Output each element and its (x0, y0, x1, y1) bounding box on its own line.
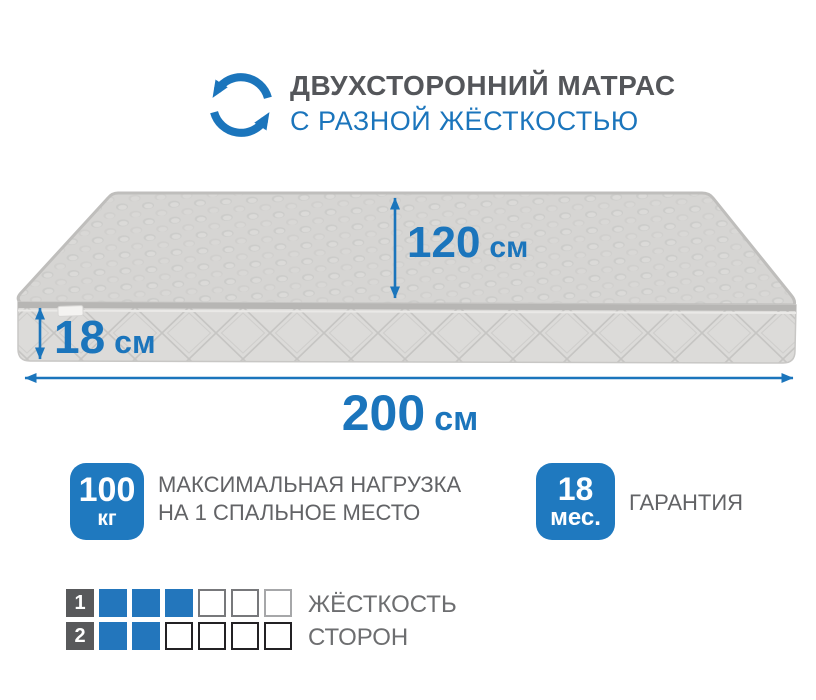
hardness-caption: ЖЁСТКОСТЬ СТОРОН (308, 588, 457, 654)
depth-dimension-label: 120см (407, 218, 528, 268)
width-value: 200 (342, 385, 425, 441)
hardness-cell-filled (99, 589, 127, 617)
hardness-side1-label: 1 (66, 589, 94, 617)
width-dimension-label: 200см (260, 384, 560, 442)
infographic: ДВУХСТОРОННИЙ МАТРАС С РАЗНОЙ ЖЁСТКОСТЬЮ (0, 0, 816, 700)
hardness-cell-filled (165, 589, 193, 617)
max-load-caption-line2: НА 1 СПАЛЬНОЕ МЕСТО (158, 499, 461, 527)
hardness-cell-empty (165, 622, 193, 650)
depth-value: 120 (407, 218, 480, 267)
height-unit: см (114, 324, 155, 360)
hardness-cell-empty (198, 622, 226, 650)
height-dimension-label: 18см (54, 310, 156, 364)
width-unit: см (434, 400, 478, 438)
hardness-row-side2: 2 (66, 622, 292, 650)
hardness-cell-empty (231, 589, 259, 617)
warranty-caption-line1: ГАРАНТИЯ (629, 489, 743, 517)
hardness-side2-label: 2 (66, 622, 94, 650)
max-load-unit: кг (97, 507, 116, 531)
hardness-scale: 1 2 (66, 589, 292, 655)
max-load-caption-line1: МАКСИМАЛЬНАЯ НАГРУЗКА (158, 471, 461, 499)
depth-unit: см (489, 231, 528, 264)
hardness-cell-empty (231, 622, 259, 650)
warranty-value: 18 (558, 473, 594, 505)
max-load-badge: 100 кг (70, 463, 144, 540)
max-load-caption: МАКСИМАЛЬНАЯ НАГРУЗКА НА 1 СПАЛЬНОЕ МЕСТ… (158, 471, 461, 527)
hardness-row-side1: 1 (66, 589, 292, 617)
warranty-unit: мес. (550, 505, 601, 531)
warranty-badge: 18 мес. (536, 463, 615, 540)
hardness-caption-line1: ЖЁСТКОСТЬ (308, 588, 457, 621)
hardness-cell-empty (264, 589, 292, 617)
hardness-cell-empty (198, 589, 226, 617)
warranty-caption: ГАРАНТИЯ (629, 489, 743, 517)
height-value: 18 (54, 311, 105, 363)
hardness-cell-empty (264, 622, 292, 650)
hardness-caption-line2: СТОРОН (308, 621, 457, 654)
hardness-cell-filled (132, 589, 160, 617)
max-load-value: 100 (79, 473, 136, 507)
hardness-cell-filled (132, 622, 160, 650)
hardness-cell-filled (99, 622, 127, 650)
